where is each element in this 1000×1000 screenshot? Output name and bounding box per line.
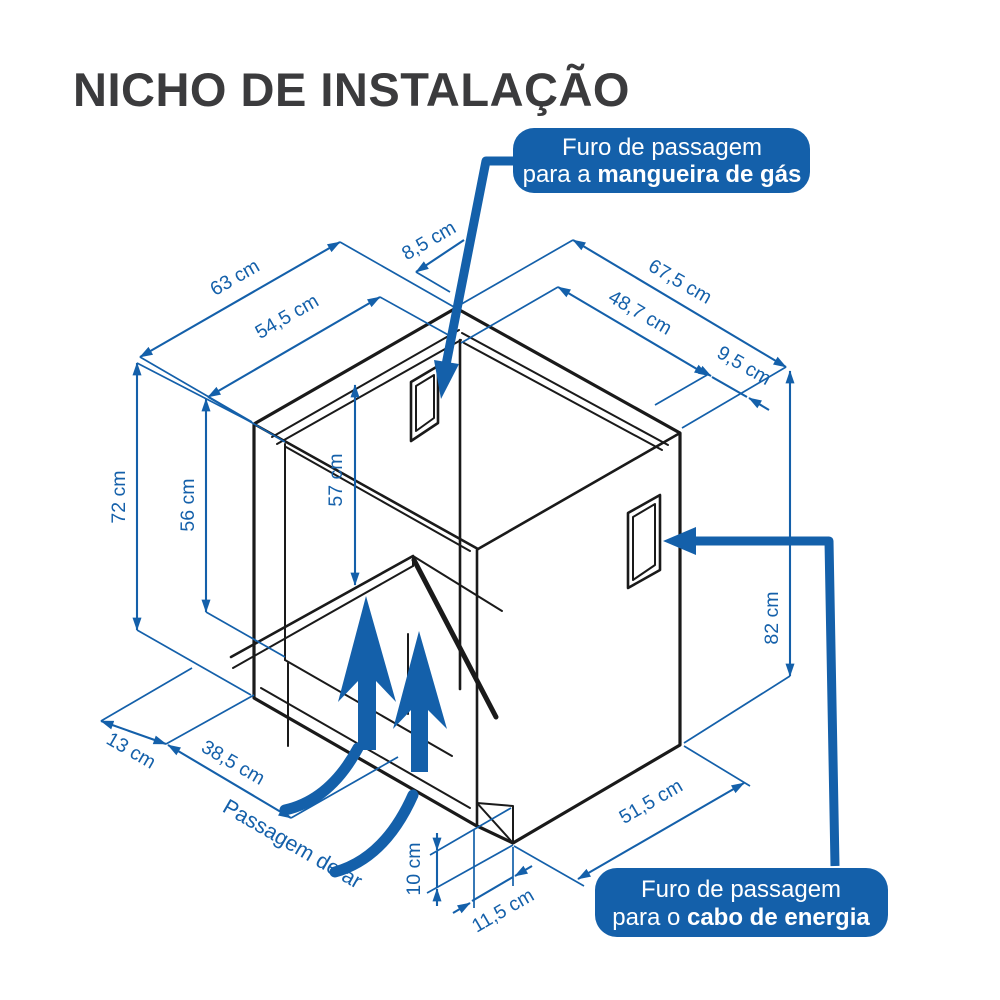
dimension-bottom-edge: 51,5 cm: [514, 746, 750, 886]
gas-callout-line1: Furo de passagem: [562, 134, 762, 161]
dimension-notch-height: 10 cm: [403, 808, 513, 906]
niche-structure: [231, 308, 680, 843]
power-callout: Furo de passagem para o cabo de energia: [595, 868, 888, 937]
dimension-label: 8,5 cm: [398, 217, 460, 265]
air-arrow-up-icon: [338, 596, 396, 750]
dimension-label: 67,5 cm: [644, 255, 715, 309]
air-flow-arrows: [285, 596, 447, 872]
dimension-label: 11,5 cm: [468, 884, 538, 937]
cable-hole: [628, 495, 660, 588]
power-callout-line1: Furo de passagem: [641, 876, 841, 903]
dimension-label: 56 cm: [177, 478, 199, 531]
gas-callout: Furo de passagem para a mangueira de gás: [513, 128, 810, 193]
dimension-side-height: 82 cm: [684, 371, 790, 743]
dimension-side-offset: 9,5 cm: [697, 342, 775, 410]
dimension-label: 10 cm: [403, 842, 425, 895]
dimension-label: 63 cm: [207, 255, 264, 301]
installation-niche-diagram: NICHO DE INSTALAÇÃO: [0, 0, 1000, 1000]
gas-hole: [411, 366, 438, 441]
dimension-label: 13 cm: [103, 728, 160, 774]
dimension-opening-height: 56 cm: [177, 399, 285, 657]
dimension-outer-width: 63 cm: [140, 242, 454, 422]
power-callout-line2: para o cabo de energia: [612, 904, 870, 931]
page-title: NICHO DE INSTALAÇÃO: [73, 63, 630, 116]
dimension-label: 38,5 cm: [197, 736, 268, 790]
dimension-label: 82 cm: [761, 591, 783, 644]
gas-callout-line2: para a mangueira de gás: [523, 161, 802, 188]
dimension-label: 51,5 cm: [615, 775, 686, 829]
air-arrow-up-icon: [393, 631, 447, 772]
dimension-label: 72 cm: [108, 470, 130, 523]
dimension-notch-width: 11,5 cm: [453, 830, 538, 937]
diagram-page: NICHO DE INSTALAÇÃO: [0, 0, 1000, 1000]
dimension-inner-depth: 48,7 cm: [461, 286, 707, 405]
dimension-label: 57 cm: [325, 453, 347, 506]
